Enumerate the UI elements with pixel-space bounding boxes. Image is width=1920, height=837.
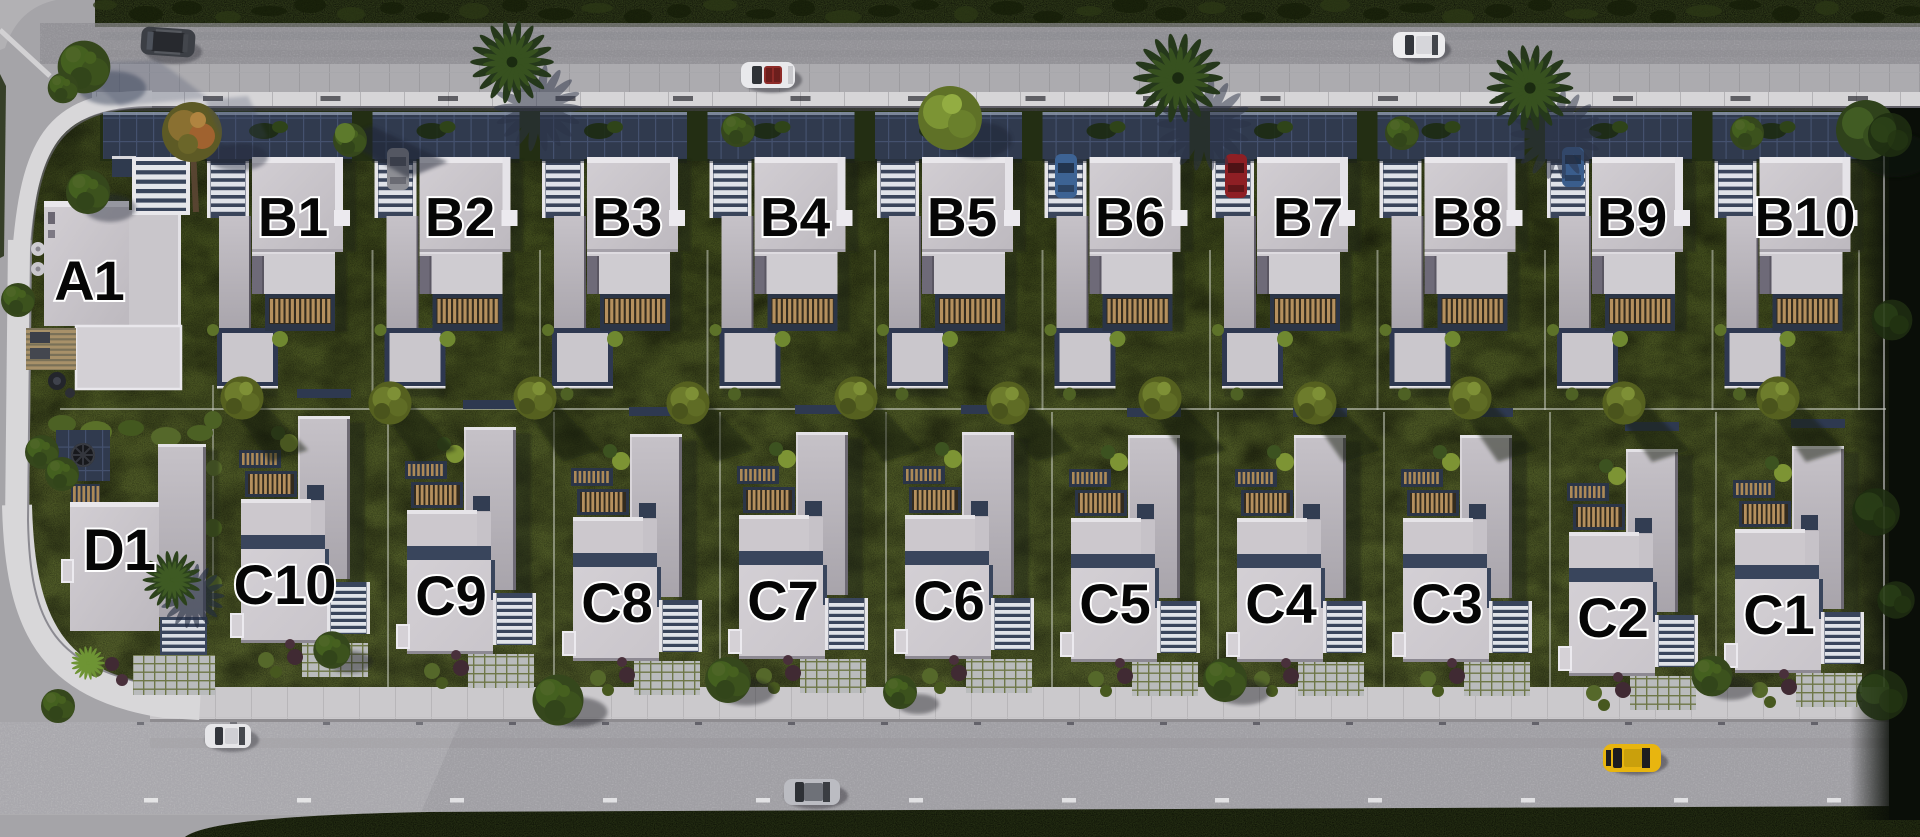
- svg-text:C10: C10: [234, 553, 337, 616]
- svg-text:D1: D1: [83, 518, 155, 583]
- svg-text:C8: C8: [581, 571, 653, 634]
- svg-text:B3: B3: [592, 186, 662, 248]
- svg-text:B10: B10: [1755, 186, 1856, 248]
- svg-text:C7: C7: [747, 569, 819, 632]
- svg-text:C5: C5: [1079, 572, 1151, 635]
- svg-text:B8: B8: [1432, 186, 1502, 248]
- svg-text:C3: C3: [1411, 572, 1483, 635]
- svg-text:C9: C9: [415, 564, 487, 627]
- svg-text:B2: B2: [425, 186, 495, 248]
- svg-text:C2: C2: [1577, 586, 1649, 649]
- svg-text:B7: B7: [1273, 186, 1343, 248]
- svg-text:C4: C4: [1245, 572, 1317, 635]
- svg-text:C1: C1: [1743, 583, 1815, 646]
- svg-text:B9: B9: [1597, 186, 1667, 248]
- svg-text:B4: B4: [760, 186, 831, 248]
- svg-text:B6: B6: [1095, 186, 1165, 248]
- svg-text:C6: C6: [913, 569, 985, 632]
- svg-text:A1: A1: [54, 249, 124, 312]
- svg-text:B5: B5: [927, 186, 997, 248]
- svg-text:B1: B1: [258, 186, 328, 248]
